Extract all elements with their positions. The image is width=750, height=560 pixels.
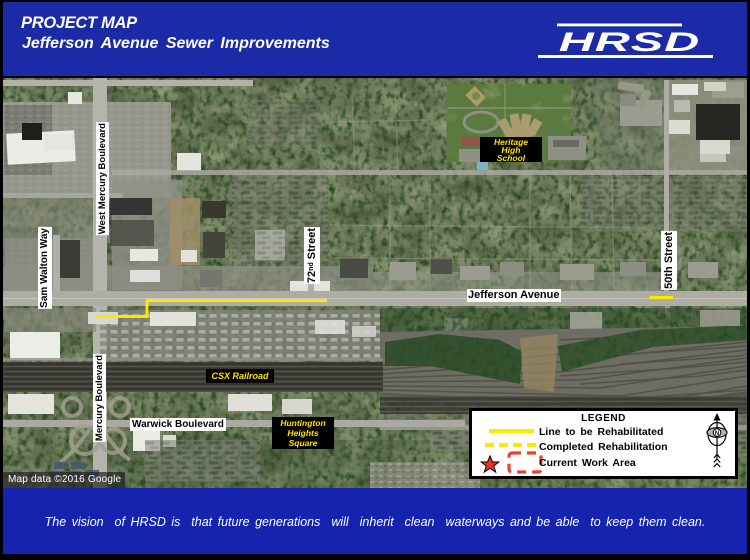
svg-text:N: N bbox=[715, 431, 719, 437]
svg-text:HRSD: HRSD bbox=[559, 27, 700, 57]
